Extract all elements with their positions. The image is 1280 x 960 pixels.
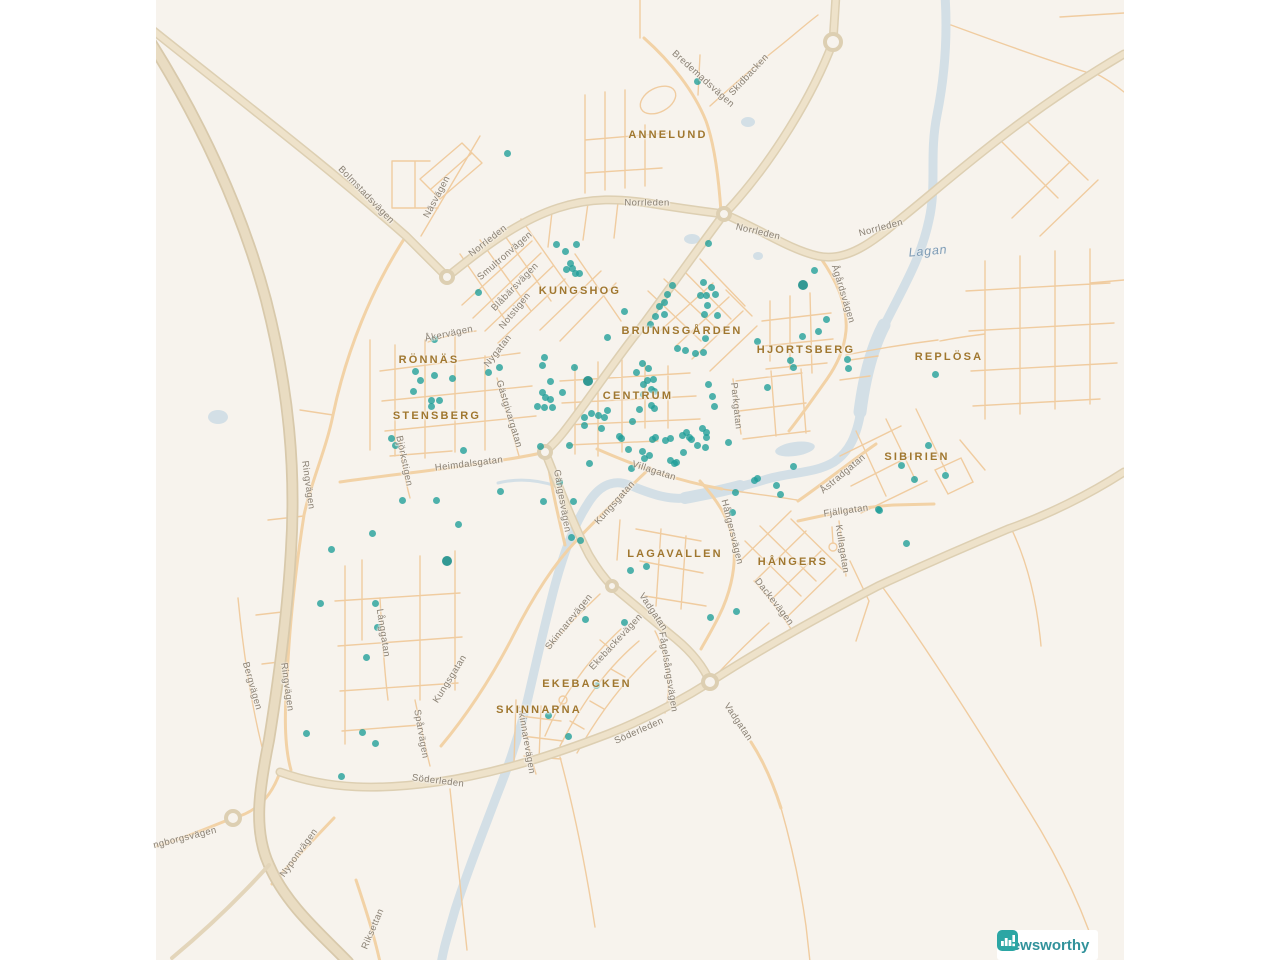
newsworthy-logo-icon bbox=[997, 930, 1018, 951]
map-base bbox=[0, 0, 1280, 960]
map-stage[interactable]: BredemadsvägenSkidbackenNorrledenNorrled… bbox=[0, 0, 1280, 960]
attribution-badge[interactable]: Newsworthy bbox=[997, 930, 1098, 960]
